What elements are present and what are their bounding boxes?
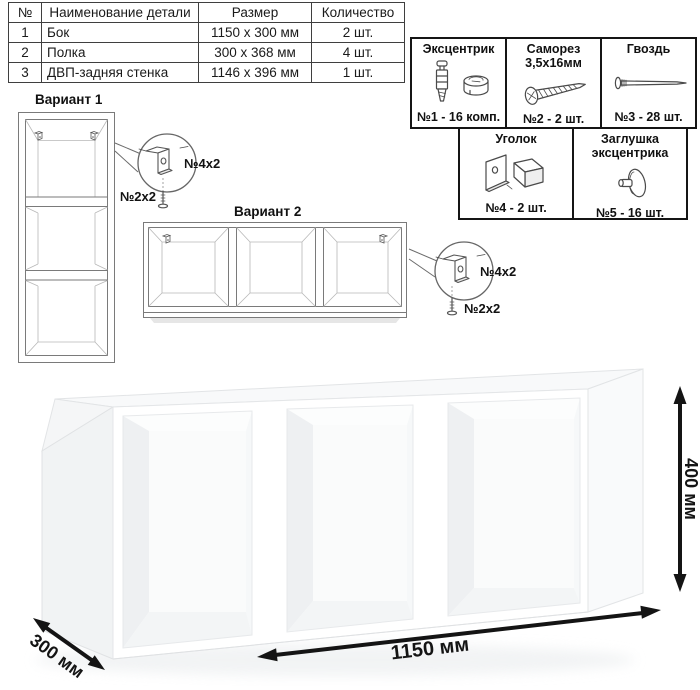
variant2-title: Вариант 2	[234, 204, 301, 219]
variant1-screw-qty: №2х2	[120, 189, 156, 204]
hardware-item-nail: Гвоздь №3 - 28 шт.	[600, 37, 697, 129]
shelf-compartment	[123, 411, 252, 648]
table-row: 3 ДВП-задняя стенка 1146 x 396 мм 1 шт.	[9, 63, 405, 83]
cam-cap-icon	[595, 160, 665, 206]
variant2-drawing	[144, 223, 407, 324]
hardware-title: Саморез	[527, 39, 581, 56]
header-name: Наименование детали	[42, 3, 199, 23]
screw-icon	[448, 298, 457, 315]
header-num: №	[9, 3, 42, 23]
hardware-title: Гвоздь	[627, 39, 671, 56]
dimension-height: 400 мм	[674, 386, 700, 592]
shelf-right-face	[588, 369, 643, 612]
variant1-bracket-qty: №4х2	[184, 156, 220, 171]
variant1-drawing	[19, 113, 115, 363]
header-size: Размер	[199, 3, 312, 23]
part-qty: 1 шт.	[312, 63, 405, 83]
part-name: ДВП-задняя стенка	[42, 63, 199, 83]
variant1-title: Вариант 1	[35, 92, 102, 107]
header-qty: Количество	[312, 3, 405, 23]
part-size: 1146 x 396 мм	[199, 63, 312, 83]
hardware-legend-row-1: Эксцентрик	[410, 37, 700, 129]
hardware-count: №3 - 28 шт.	[614, 110, 682, 127]
shelf-left-face	[42, 407, 113, 659]
hardware-count: №4 - 2 шт.	[485, 201, 546, 218]
part-qty: 4 шт.	[312, 43, 405, 63]
hardware-icon-box	[607, 56, 691, 110]
part-name: Бок	[42, 23, 199, 43]
hardware-icon-box	[514, 70, 594, 112]
shelf-compartment	[287, 405, 413, 632]
part-qty: 2 шт.	[312, 23, 405, 43]
hardware-legend-row-2: Уголок №4 -	[458, 127, 688, 220]
hardware-icon-box	[595, 160, 665, 206]
screw-icon	[159, 191, 168, 208]
hardware-item-screw: Саморез 3,5х16мм №2 - 2 шт.	[505, 37, 602, 129]
hardware-title: Заглушка	[601, 129, 659, 146]
hardware-item-bracket: Уголок №4 -	[458, 127, 574, 220]
shelf-3d-render	[35, 369, 643, 676]
cam-dowel-icon	[419, 58, 499, 108]
screw-icon	[514, 70, 594, 112]
hardware-subtitle: эксцентрика	[592, 146, 669, 160]
part-size: 1150 x 300 мм	[199, 23, 312, 43]
variant1-callout: №4х2 №2х2	[115, 134, 220, 208]
dimension-height-label: 400 мм	[681, 458, 700, 520]
hardware-subtitle: 3,5х16мм	[525, 56, 582, 70]
hardware-item-cap: Заглушка эксцентрика №5 - 16 шт.	[572, 127, 688, 220]
part-num: 2	[9, 43, 42, 63]
variant2-bracket-qty: №4х2	[480, 264, 516, 279]
hardware-icon-box	[474, 146, 558, 201]
table-row: 1 Бок 1150 x 300 мм 2 шт.	[9, 23, 405, 43]
part-size: 300 x 368 мм	[199, 43, 312, 63]
parts-table-header-row: № Наименование детали Размер Количество	[9, 3, 405, 23]
hardware-legend: Эксцентрик	[410, 37, 700, 129]
shelf-compartment	[448, 398, 580, 616]
hardware-item-cam: Эксцентрик	[410, 37, 507, 129]
parts-table: № Наименование детали Размер Количество …	[8, 2, 405, 83]
corner-bracket-icon	[474, 148, 558, 200]
hardware-title: Эксцентрик	[423, 39, 495, 56]
table-row: 2 Полка 300 x 368 мм 4 шт.	[9, 43, 405, 63]
part-num: 1	[9, 23, 42, 43]
hardware-icon-box	[419, 56, 499, 110]
nail-icon	[607, 67, 691, 99]
part-num: 3	[9, 63, 42, 83]
hardware-count: №1 - 16 комп.	[417, 110, 500, 127]
part-name: Полка	[42, 43, 199, 63]
variant2-callout: №4х2 №2х2	[409, 242, 516, 316]
variant2-screw-qty: №2х2	[464, 301, 500, 316]
hardware-count: №5 - 16 шт.	[596, 206, 664, 223]
assembly-instruction-sheet: № Наименование детали Размер Количество …	[0, 0, 700, 690]
hardware-title: Уголок	[495, 129, 536, 146]
